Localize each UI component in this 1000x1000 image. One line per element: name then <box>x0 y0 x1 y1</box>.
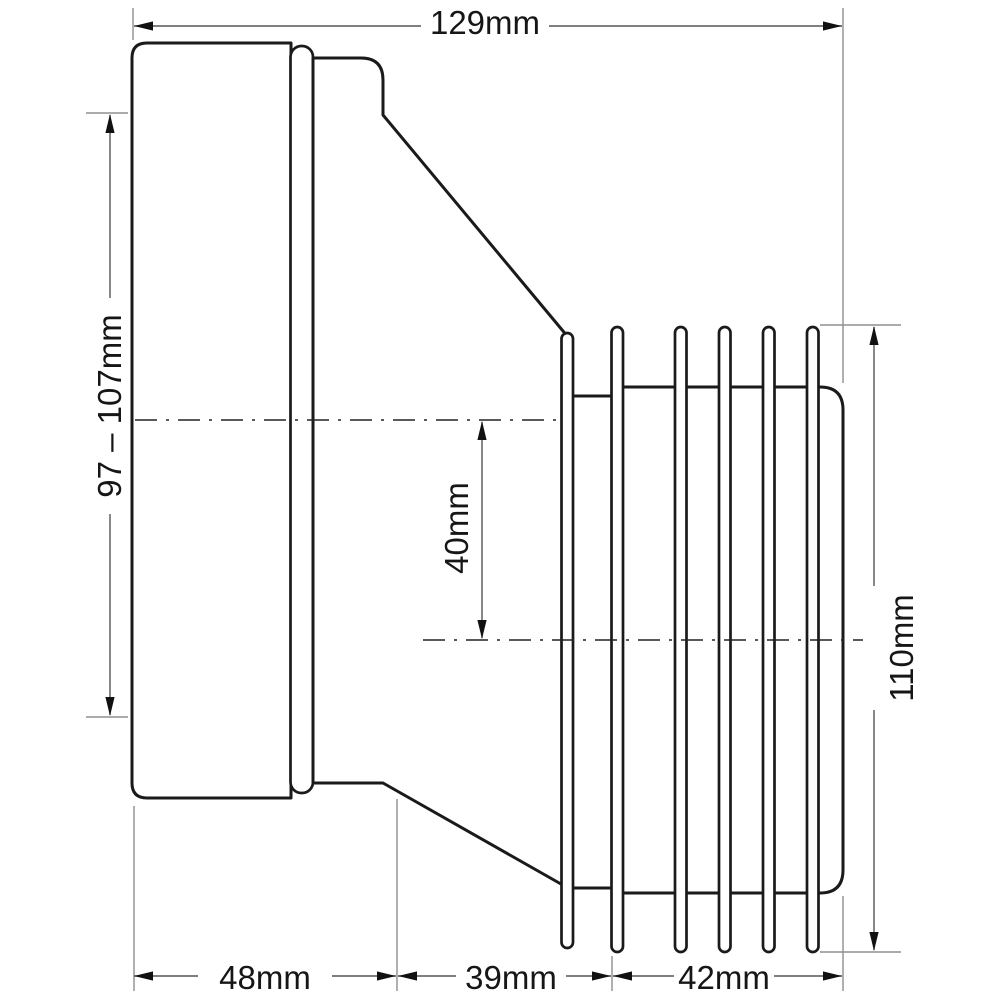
arrowhead-right <box>377 971 396 980</box>
dimension-inlet-range: 97 – 107mm <box>86 113 128 717</box>
arrowhead-left <box>134 971 153 980</box>
dim-label-overall-length: 129mm <box>430 4 540 41</box>
dim-label-taper-length: 39mm <box>465 959 557 996</box>
arrowhead-left <box>613 971 632 980</box>
dim-label-inlet-range: 97 – 107mm <box>91 314 128 497</box>
arrowhead-right <box>592 971 611 980</box>
technical-drawing-canvas: 129mm 97 – 107mm 40mm 110mm <box>0 0 1000 1000</box>
technical-drawing-page: 129mm 97 – 107mm 40mm 110mm <box>0 0 1000 1000</box>
arrowhead-down <box>869 932 878 951</box>
arrowhead-down <box>105 697 114 716</box>
dim-label-socket-length: 48mm <box>219 959 311 996</box>
dim-label-spigot-length: 42mm <box>678 959 770 996</box>
arrowhead-left <box>134 21 153 30</box>
dim-label-offset: 40mm <box>438 482 475 574</box>
arrowhead-right <box>823 21 842 30</box>
part-outline <box>132 43 843 952</box>
arrowhead-left <box>398 971 417 980</box>
arrowhead-up <box>869 326 878 345</box>
arrowhead-up <box>105 114 114 133</box>
dim-label-outlet-diameter: 110mm <box>883 594 920 702</box>
arrowhead-right <box>823 971 842 980</box>
